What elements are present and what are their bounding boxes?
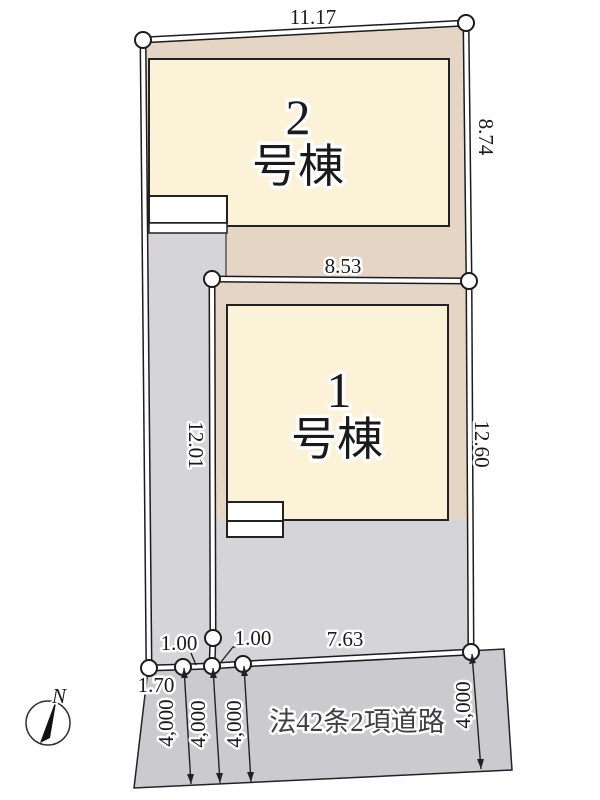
dim-frontage-main: 7.63 [327,627,364,651]
dim-between-lots: 8.53 [325,254,362,278]
road-name-label: 法42条2項道路 [269,707,445,737]
building-2-number: 2 [286,89,311,145]
dim-frontage-seg-b: 1.00 [235,626,272,650]
dim-road-width: 4,000 [222,700,246,747]
dim-top-width: 11.17 [290,5,336,29]
north-arrow-icon: N [26,684,70,745]
building-1-suffix: 号棟 [291,414,383,465]
dim-upper-right-depth: 8.74 [474,119,498,156]
dim-road-width: 4,000 [154,699,178,746]
dim-road-width: 4,000 [451,681,475,728]
dim-left-depth: 12.01 [184,421,208,468]
survey-point [135,32,151,48]
building-1-step [227,521,283,537]
dim-road-width: 4,000 [186,700,210,747]
building-2-suffix: 号棟 [252,141,344,192]
building-1-number: 1 [327,362,352,418]
dim-frontage-seg-a: 1.00 [161,631,198,655]
site-plan-page: N 11.17 8.74 8.53 12.01 12.60 1.00 1.00 … [0,0,600,800]
survey-point [204,271,220,287]
survey-point [205,630,221,646]
building-2-step [149,223,227,233]
dim-frontage-offset: 1.70 [138,673,175,697]
building-2-porch [149,196,227,223]
survey-point [458,15,474,31]
north-label: N [51,684,67,708]
survey-point [461,273,477,289]
dim-lower-right-depth: 12.60 [470,420,494,467]
building-1-porch [227,502,283,521]
site-plan-drawing: N 11.17 8.74 8.53 12.01 12.60 1.00 1.00 … [0,0,600,800]
